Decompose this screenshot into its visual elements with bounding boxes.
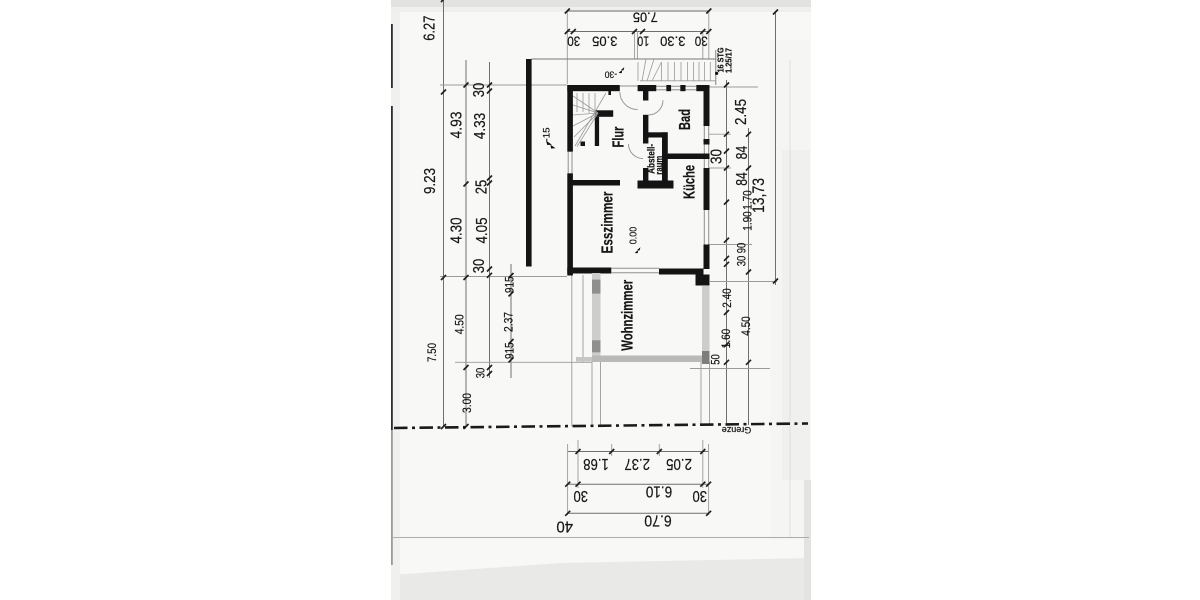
svg-text:raum: raum: [655, 156, 666, 175]
svg-text:Küche: Küche: [682, 165, 699, 199]
svg-text:25: 25: [474, 180, 491, 195]
svg-text:2.37: 2.37: [624, 455, 650, 472]
svg-text:90: 90: [735, 243, 749, 254]
svg-text:1.60: 1.60: [719, 328, 733, 348]
svg-text:2.40: 2.40: [720, 288, 734, 308]
svg-text:3.30: 3.30: [660, 34, 686, 49]
svg-text:1.90: 1.90: [741, 211, 755, 231]
svg-text:2.05: 2.05: [666, 455, 692, 472]
svg-text:4.05: 4.05: [474, 217, 491, 243]
svg-text:2.45: 2.45: [733, 99, 750, 125]
svg-text:1.25/17: 1.25/17: [725, 47, 734, 73]
svg-text:0.00: 0.00: [627, 227, 639, 245]
svg-text:50: 50: [709, 354, 723, 365]
svg-text:915: 915: [505, 342, 517, 359]
svg-text:30: 30: [695, 34, 708, 49]
svg-text:30: 30: [471, 83, 488, 98]
svg-text:40: 40: [556, 518, 573, 535]
svg-text:Wohnzimmer: Wohnzimmer: [620, 280, 637, 351]
svg-text:Flur: Flur: [611, 127, 628, 148]
svg-text:4.30: 4.30: [449, 217, 466, 243]
svg-text:1.70: 1.70: [741, 190, 755, 210]
svg-text:4.93: 4.93: [448, 111, 465, 138]
svg-text:30: 30: [567, 34, 580, 49]
svg-text:6.27: 6.27: [422, 16, 439, 41]
svg-text:7.50: 7.50: [425, 343, 439, 362]
svg-text:3.00: 3.00: [460, 393, 474, 413]
svg-text:30: 30: [735, 256, 749, 267]
svg-text:7.05: 7.05: [633, 9, 658, 24]
svg-text:84: 84: [734, 172, 751, 186]
svg-text:30: 30: [471, 259, 488, 274]
svg-text:30: 30: [473, 368, 487, 379]
svg-text:6.70: 6.70: [644, 511, 671, 528]
svg-text:30: 30: [573, 487, 588, 504]
svg-text:9.23: 9.23: [422, 168, 439, 194]
svg-text:-30: -30: [605, 69, 618, 80]
svg-text:915: 915: [505, 276, 517, 293]
svg-text:4.50: 4.50: [453, 314, 467, 334]
svg-text:Bad: Bad: [677, 109, 694, 130]
svg-text:10: 10: [637, 34, 649, 49]
svg-text:3.05: 3.05: [592, 34, 618, 49]
svg-text:1.68: 1.68: [583, 455, 609, 472]
svg-text:Esszimmer: Esszimmer: [600, 192, 617, 254]
svg-text:30: 30: [708, 149, 725, 164]
svg-text:4.50: 4.50: [739, 316, 753, 336]
svg-text:-15: -15: [542, 128, 552, 142]
svg-text:4.33: 4.33: [472, 113, 489, 140]
svg-text:2.37: 2.37: [504, 312, 516, 332]
svg-text:Grenze: Grenze: [722, 425, 752, 435]
svg-text:84: 84: [734, 146, 751, 160]
svg-text:6.10: 6.10: [646, 483, 673, 500]
svg-text:30: 30: [692, 487, 707, 504]
